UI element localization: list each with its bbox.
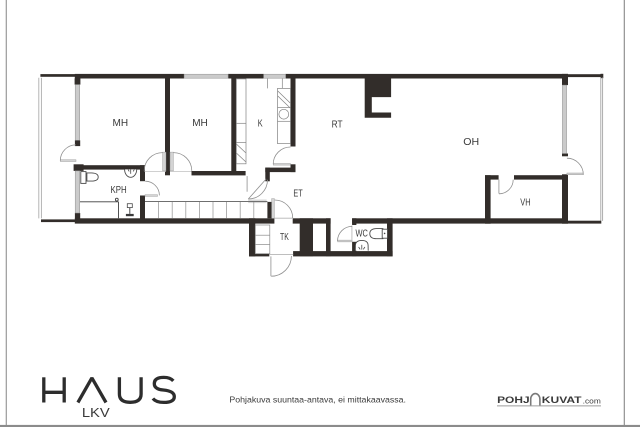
- svg-text:KPH: KPH: [111, 185, 127, 196]
- svg-text:TK: TK: [280, 232, 289, 243]
- svg-text:KUVAT: KUVAT: [542, 395, 582, 406]
- svg-text:RT: RT: [332, 119, 343, 130]
- svg-text:POHJ: POHJ: [497, 395, 529, 406]
- svg-text:LKV: LKV: [82, 405, 110, 420]
- svg-text:ET: ET: [293, 188, 303, 199]
- svg-text:OH: OH: [463, 137, 479, 148]
- svg-text:WC: WC: [356, 228, 369, 239]
- svg-text:.com: .com: [583, 396, 601, 405]
- svg-text:Pohjakuva suuntaa-antava, ei m: Pohjakuva suuntaa-antava, ei mittakaavas…: [229, 395, 406, 405]
- svg-text:VH: VH: [520, 197, 530, 208]
- svg-text:K: K: [258, 119, 263, 130]
- svg-text:MH: MH: [192, 118, 208, 129]
- svg-text:MH: MH: [113, 118, 129, 129]
